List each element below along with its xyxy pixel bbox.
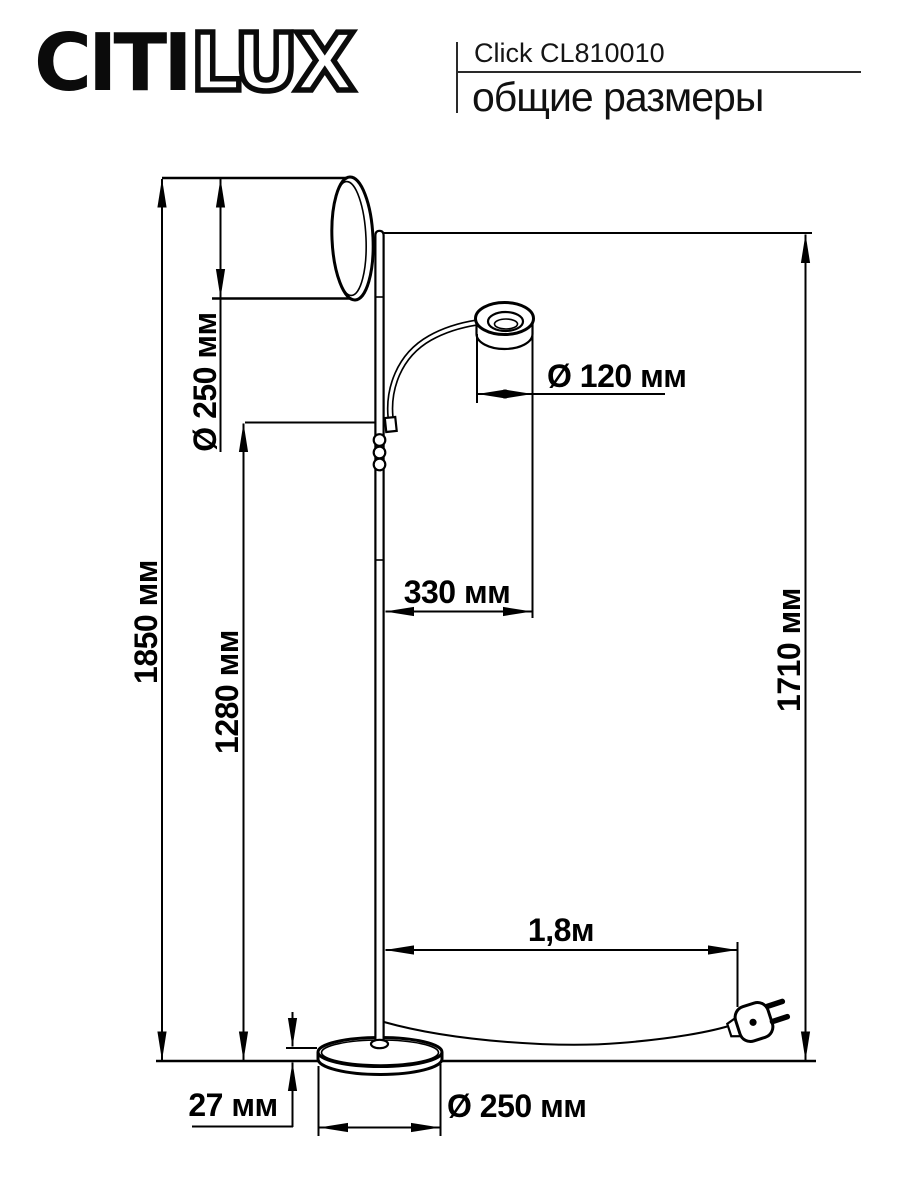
power-cable bbox=[384, 1022, 735, 1045]
dim-arm-reach-label: 330 мм bbox=[404, 574, 511, 610]
reading-head bbox=[476, 303, 534, 350]
floor-lamp-drawing bbox=[156, 176, 816, 1074]
flex-arm-core bbox=[390, 323, 477, 418]
dim-head-height-label: 1280 мм bbox=[209, 630, 245, 754]
switch-button-3 bbox=[374, 459, 386, 471]
switch-button-2 bbox=[374, 447, 386, 459]
dim-head-diameter-label: Ø 120 мм bbox=[547, 358, 686, 394]
dim-pole-height-label: 1710 мм bbox=[771, 588, 807, 712]
pole bbox=[375, 231, 383, 1043]
dim-base-diameter-label: Ø 250 мм bbox=[447, 1088, 586, 1124]
reading-head-lens bbox=[488, 312, 523, 331]
plug-prong-top bbox=[764, 998, 786, 1010]
base-hub bbox=[371, 1040, 388, 1048]
dim-base-height-label: 27 мм bbox=[188, 1087, 277, 1123]
dim-total-height-label: 1850 мм bbox=[128, 560, 164, 684]
arm-connector bbox=[385, 417, 397, 432]
touch-switches bbox=[374, 434, 386, 470]
main-shade bbox=[162, 176, 376, 301]
plug-prong-bottom bbox=[769, 1013, 791, 1025]
technical-drawing: 1850 мм Ø 250 мм 1280 мм 1710 мм Ø 120 м… bbox=[0, 0, 900, 1200]
switch-button-1 bbox=[374, 434, 386, 446]
dim-shade-diameter-label: Ø 250 мм bbox=[187, 312, 223, 451]
power-plug-icon bbox=[724, 994, 794, 1047]
flex-arm bbox=[390, 323, 477, 418]
dim-cable-length-label: 1,8м bbox=[528, 912, 594, 948]
